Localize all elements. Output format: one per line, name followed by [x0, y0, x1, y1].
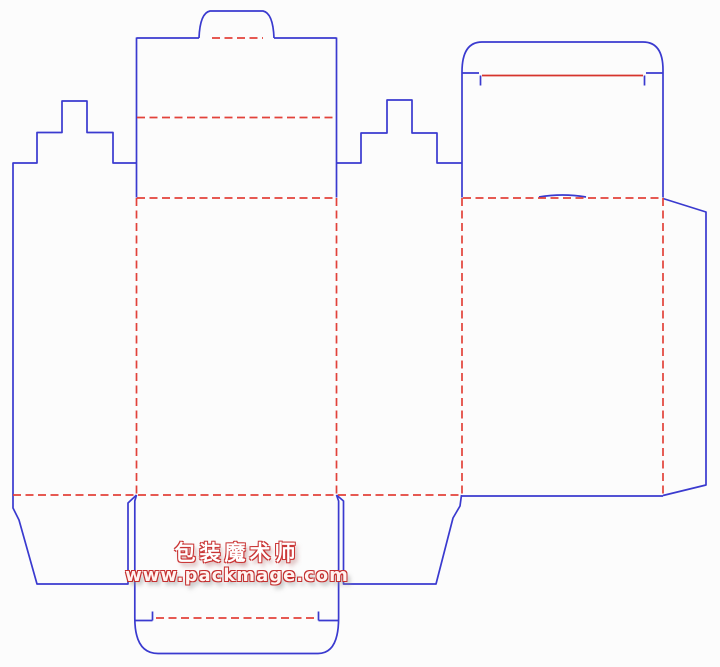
back-lid-outline — [462, 42, 663, 72]
bottom-tuck-flap-outline — [135, 495, 339, 654]
cut-lines — [13, 11, 706, 654]
packaging-dieline-drawing — [0, 0, 720, 667]
glue-flap-outline — [663, 199, 706, 496]
panel-side-right-outline — [337, 100, 463, 163]
bottom-tuck-flap-slits — [136, 612, 339, 621]
panel-side-left-outline — [13, 101, 137, 584]
dieline-canvas: 包装魔术师 www.packmage.com — [0, 0, 720, 667]
thumb-notch-cut — [539, 195, 586, 197]
dust-flap-bottom-right — [337, 495, 462, 584]
top-tuck-tab — [199, 11, 274, 38]
